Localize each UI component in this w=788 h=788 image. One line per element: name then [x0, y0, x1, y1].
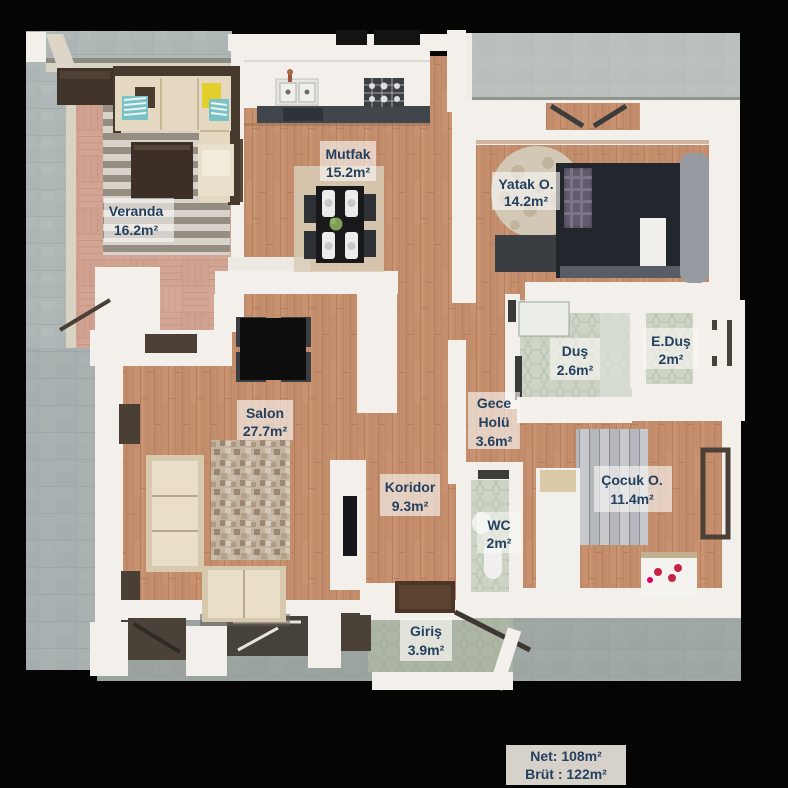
svg-text:Veranda: Veranda — [109, 203, 164, 219]
svg-text:Koridor: Koridor — [385, 479, 436, 495]
svg-text:Mutfak: Mutfak — [325, 146, 370, 162]
svg-text:27.7m²: 27.7m² — [243, 423, 288, 439]
svg-text:2m²: 2m² — [487, 535, 512, 551]
svg-text:16.2m²: 16.2m² — [114, 222, 159, 238]
svg-text:15.2m²: 15.2m² — [326, 164, 371, 180]
svg-text:Duş: Duş — [562, 343, 589, 359]
svg-text:Brüt : 122m²: Brüt : 122m² — [525, 766, 607, 782]
svg-text:11.4m²: 11.4m² — [610, 491, 654, 507]
svg-text:3.6m²: 3.6m² — [476, 433, 513, 449]
svg-text:Salon: Salon — [246, 405, 284, 421]
svg-text:Net: 108m²: Net: 108m² — [530, 748, 602, 764]
svg-text:Holü: Holü — [478, 414, 509, 430]
svg-text:2m²: 2m² — [659, 351, 684, 367]
svg-text:Giriş: Giriş — [410, 623, 442, 639]
svg-text:Yatak O.: Yatak O. — [498, 176, 553, 192]
svg-text:9.3m²: 9.3m² — [392, 498, 429, 514]
svg-text:Gece: Gece — [477, 395, 511, 411]
svg-text:14.2m²: 14.2m² — [504, 193, 549, 209]
svg-text:3.9m²: 3.9m² — [408, 642, 445, 658]
svg-text:E.Duş: E.Duş — [651, 333, 691, 349]
svg-text:WC: WC — [487, 517, 510, 533]
svg-text:Çocuk O.: Çocuk O. — [601, 472, 662, 488]
svg-text:2.6m²: 2.6m² — [557, 362, 594, 378]
